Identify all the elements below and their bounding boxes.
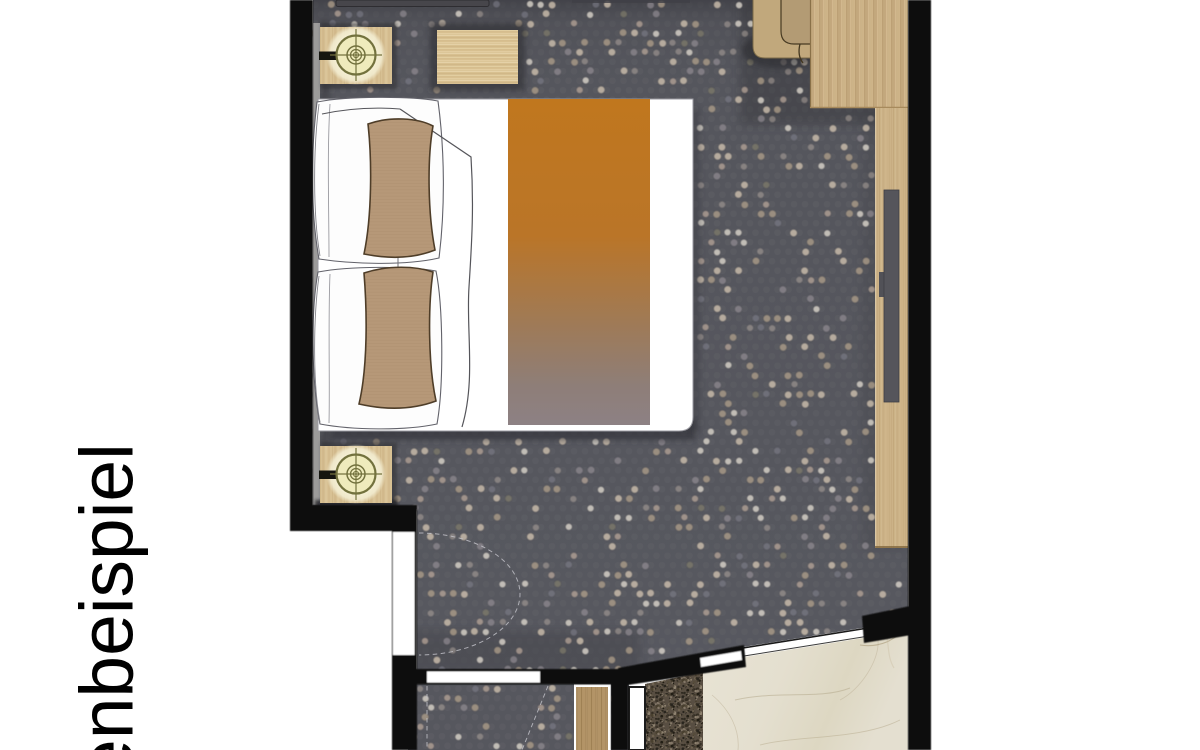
svg-text:enbeispiel: enbeispiel [65, 443, 149, 750]
